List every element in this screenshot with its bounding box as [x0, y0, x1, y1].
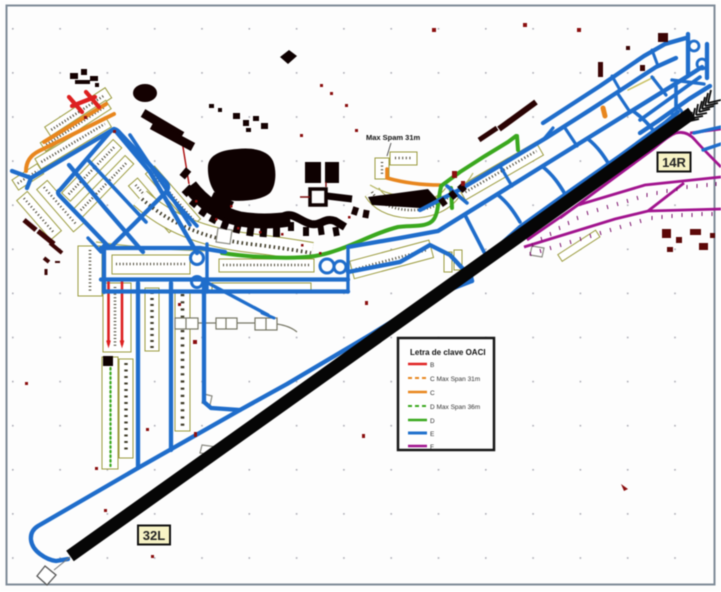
svg-text:14R: 14R — [662, 155, 686, 170]
svg-text:F: F — [430, 444, 434, 451]
svg-text:32L: 32L — [143, 528, 165, 543]
svg-text:Max Spam 31m: Max Spam 31m — [366, 133, 421, 142]
svg-text:D Max Span 36m: D Max Span 36m — [430, 404, 480, 411]
svg-text:D: D — [430, 418, 435, 425]
svg-text:C Max Span 31m: C Max Span 31m — [430, 376, 480, 383]
svg-text:E: E — [430, 431, 435, 438]
svg-text:B: B — [430, 362, 434, 369]
svg-text:Letra de clave OACI: Letra de clave OACI — [410, 348, 486, 357]
svg-text:C: C — [430, 390, 435, 397]
